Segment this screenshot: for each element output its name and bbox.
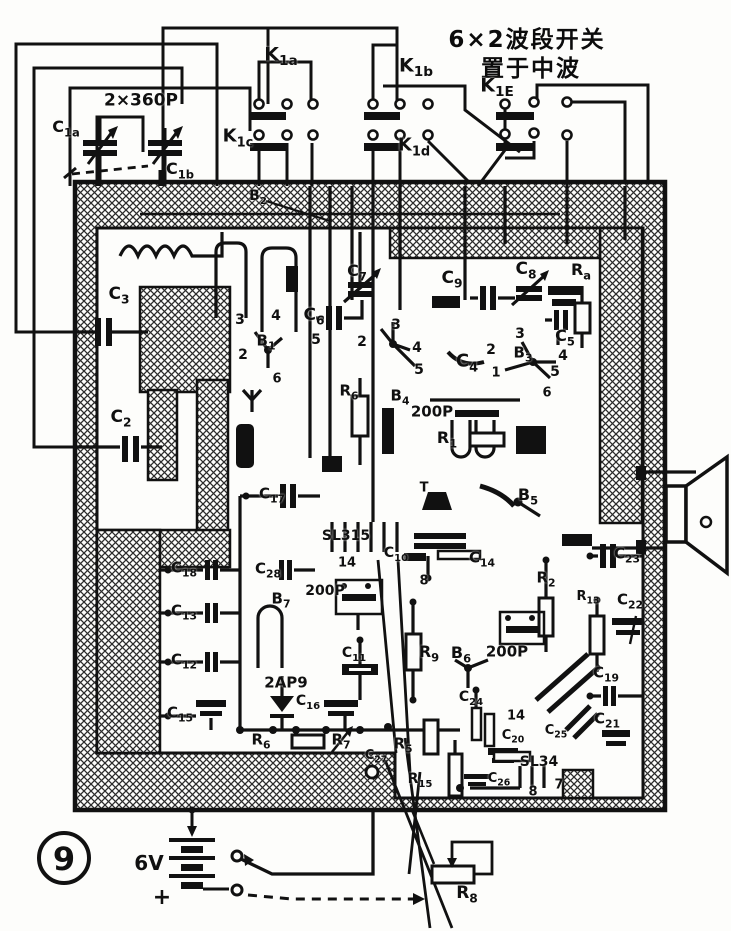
caption-line2: 置于中波 bbox=[481, 49, 581, 83]
switch-contacts bbox=[250, 98, 572, 152]
battery-icon bbox=[169, 810, 229, 889]
dashed-arrowhead-icon bbox=[413, 893, 425, 905]
circuit-artwork bbox=[0, 0, 731, 931]
tuning-capacitor bbox=[64, 117, 183, 186]
figure-number-circle bbox=[39, 833, 89, 883]
volume-link-dashed bbox=[248, 895, 413, 899]
power-switch bbox=[232, 810, 373, 895]
schematic-page: 6×2波段开关 置于中波 K1aK1bK1cK1dK1E2×360PC1aC1b… bbox=[0, 0, 731, 931]
speaker-icon bbox=[666, 457, 727, 573]
gang-link-dashed bbox=[72, 166, 148, 174]
